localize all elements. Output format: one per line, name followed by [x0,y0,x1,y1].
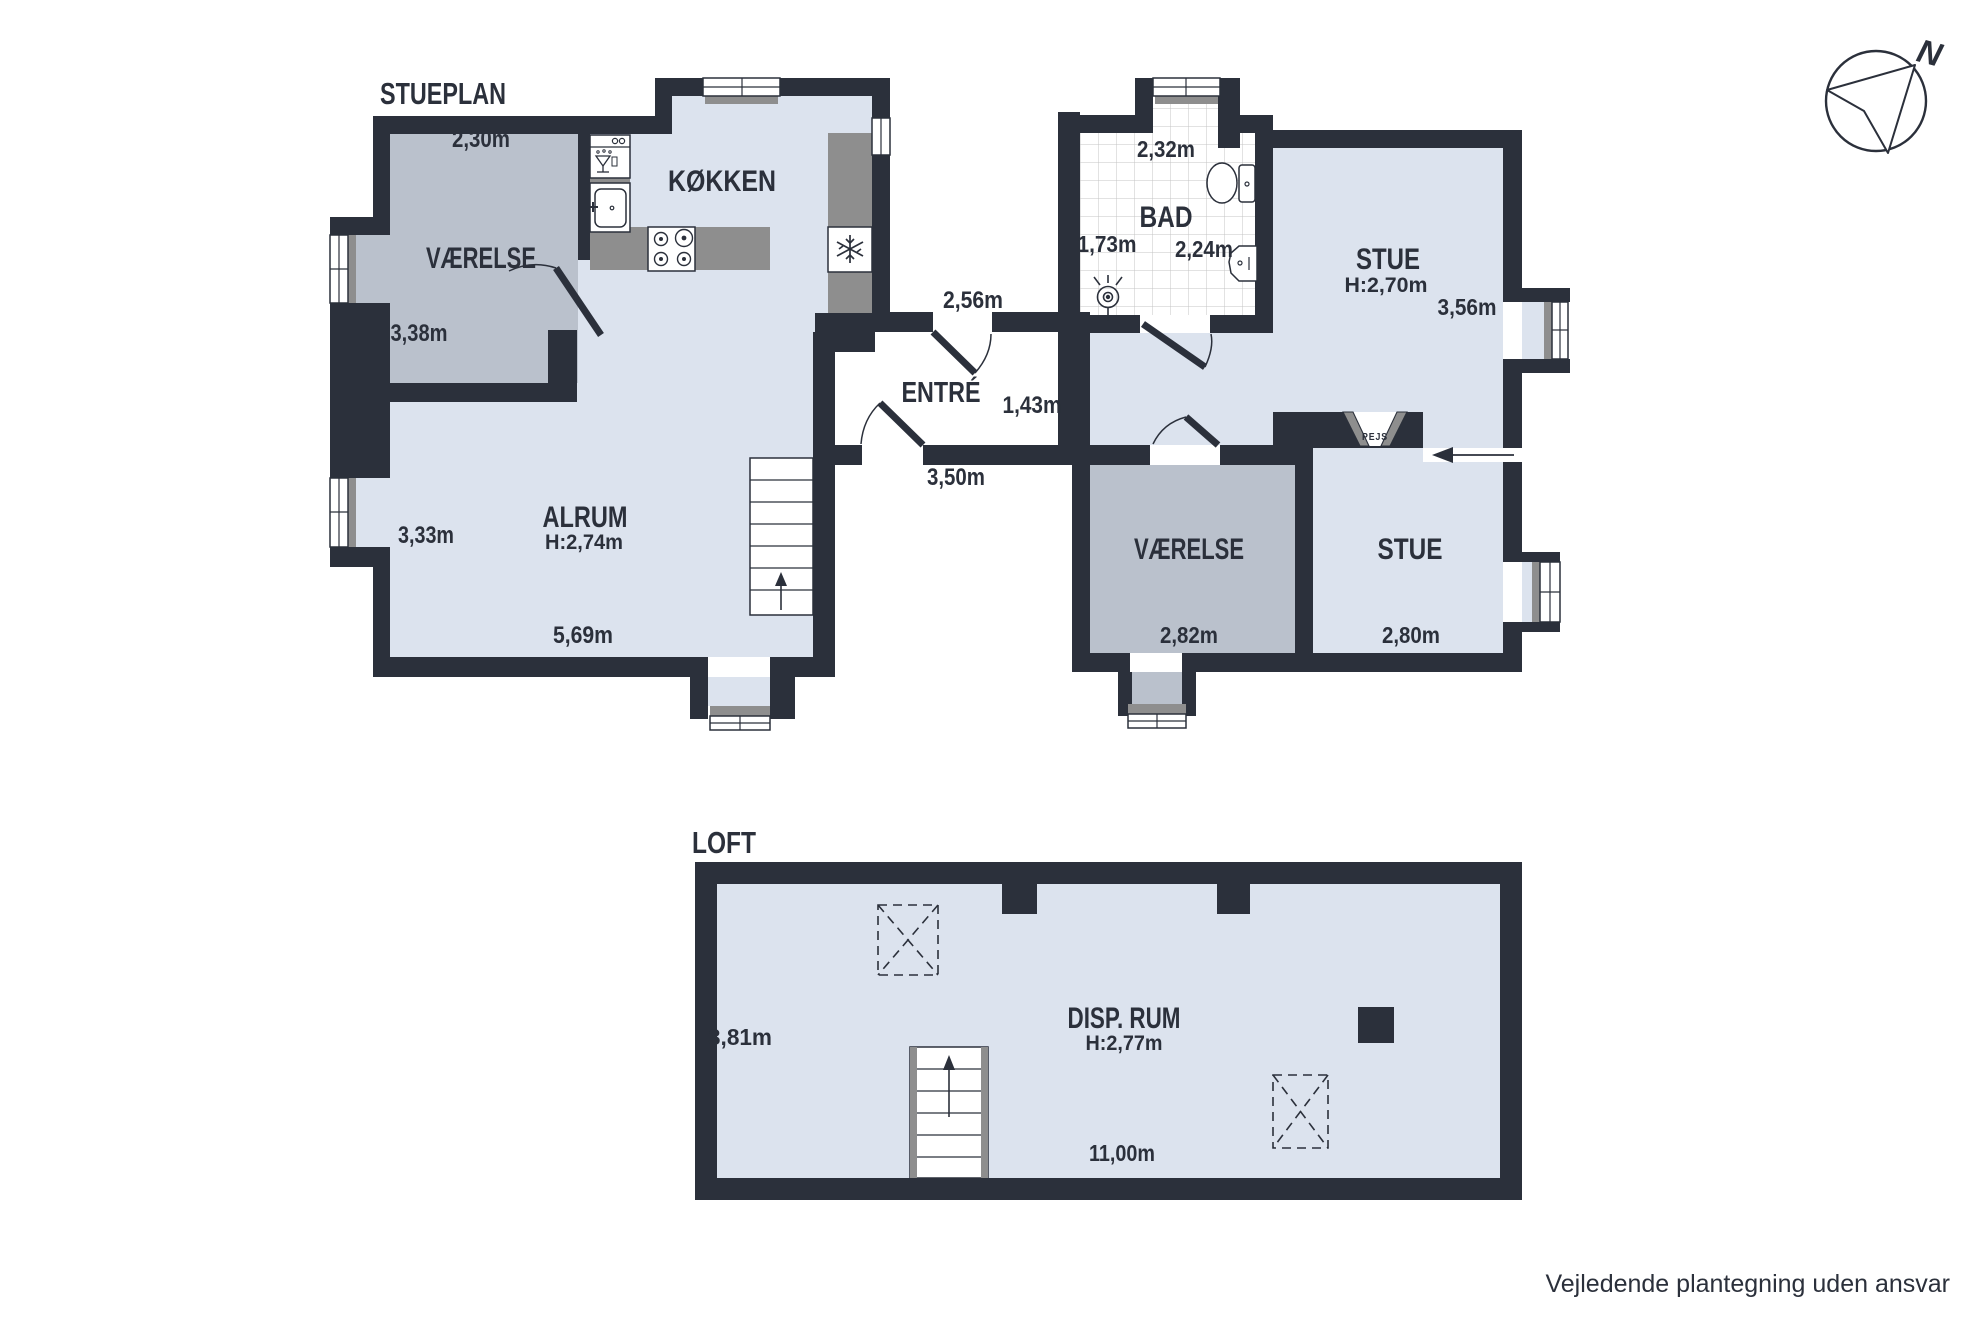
freezer-icon [828,227,872,272]
room-label-vaerelse-nw: VÆRELSE [426,242,536,275]
dim-disp-rum-ceiling: H:2,77m [1086,1032,1163,1055]
loft-plan: LOFT DISP. RUM H:2,77m 3,81m 11,00m [692,825,1522,1200]
dim-entre-bottom: 3,50m [927,464,985,491]
section-title-loft: LOFT [692,825,756,860]
dim-bad-right: 2,24m [1175,236,1233,262]
kitchen-sink-icon [588,183,630,232]
compass-north-label: N [1913,32,1947,74]
dim-stue-ne-ceiling: H:2,70m [1345,274,1428,297]
dim-entre-right: 1,43m [1003,392,1062,419]
window-kitchen-east [872,118,890,155]
window-stue-ne-east [1552,302,1568,359]
window-stue-se-east [1540,562,1560,622]
toilet-icon [1207,163,1255,203]
window-alrum-south-bay [710,716,770,730]
stairs-stueplan [750,458,813,615]
room-label-disp-rum: DISP. RUM [1068,1002,1181,1035]
dim-entre-top: 2,56m [943,287,1003,314]
stove-icon [648,227,695,271]
stueplan-plan: PEJS STUEPLAN 2,30m KØKKEN VÆRELSE 3,38m… [330,76,1570,730]
dishwasher-icon [590,135,630,178]
dim-bad-left: 1,73m [1078,231,1137,257]
dim-alrum-width: 5,69m [553,622,613,649]
dim-stue-ne-depth: 3,56m [1438,294,1497,320]
floorplan-drawing: PEJS STUEPLAN 2,30m KØKKEN VÆRELSE 3,38m… [0,0,1984,1323]
room-label-stue-se: STUE [1378,533,1443,566]
dim-alrum-depth: 3,33m [398,522,454,549]
section-title-stueplan: STUEPLAN [380,76,506,111]
dim-vaerelse-nw-depth: 3,38m [391,320,448,347]
room-label-stue-ne: STUE [1356,243,1420,276]
entrance-arrow [1423,447,1514,463]
floorplan-canvas: PEJS STUEPLAN 2,30m KØKKEN VÆRELSE 3,38m… [0,0,1984,1323]
stairs-loft [910,1047,988,1178]
room-label-entre: ENTRÉ [902,375,981,409]
window-kitchen-north [703,78,780,96]
fireplace-label: PEJS [1362,432,1388,443]
compass-icon: N [1826,32,1947,153]
window-bad-north [1153,78,1220,96]
room-label-bad: BAD [1140,201,1193,234]
window-vaerelse-se-south [1128,714,1186,728]
dim-bad-top: 2,32m [1137,136,1195,162]
dim-stue-se-width: 2,80m [1382,622,1440,648]
dim-disp-rum-depth: 3,81m [708,1024,772,1050]
dim-vaerelse-se-width: 2,82m [1160,622,1218,648]
room-label-koekken: KØKKEN [668,165,776,198]
dim-vaerelse-nw-width: 2,30m [452,126,510,153]
dim-alrum-ceiling: H:2,74m [545,531,623,554]
disclaimer-text: Vejledende plantegning uden ansvar [1545,1270,1950,1298]
chimney-block [1358,1007,1394,1043]
window-alrum-west [330,478,348,547]
room-label-alrum: ALRUM [543,501,628,534]
room-label-vaerelse-se: VÆRELSE [1134,533,1244,566]
window-vaerelse-west [330,235,348,303]
dim-disp-rum-width: 11,00m [1089,1140,1155,1166]
bathroom-sink-icon [1229,246,1257,281]
